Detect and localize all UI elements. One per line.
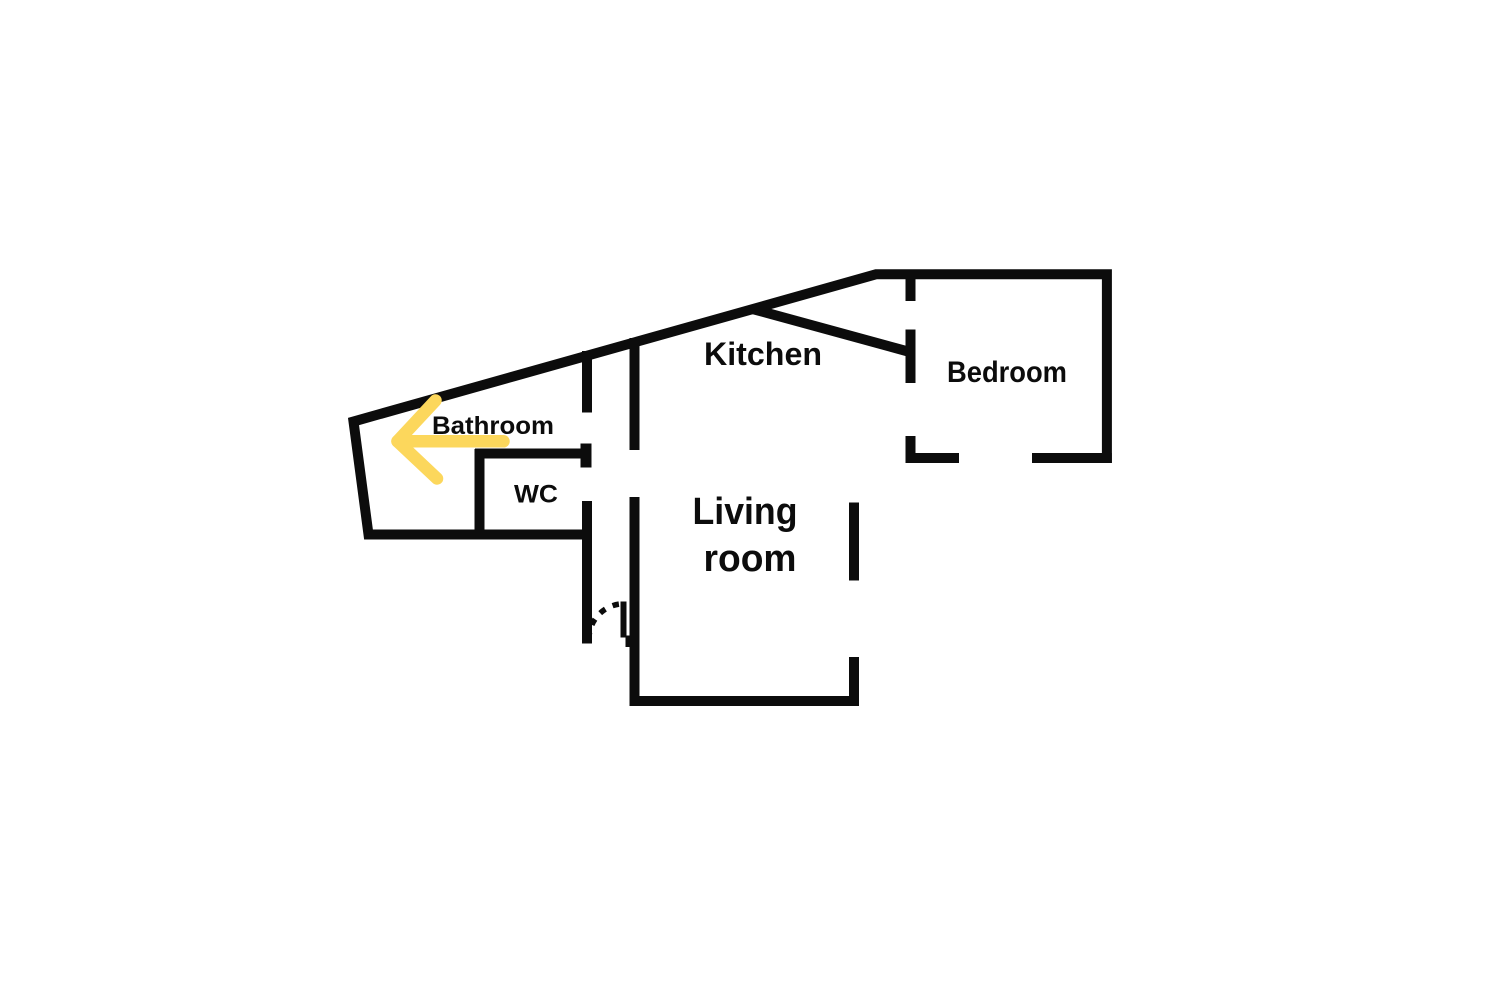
svg-text:Kitchen: Kitchen [704,336,822,372]
svg-text:Living: Living [693,491,798,533]
svg-text:WC: WC [514,481,558,509]
svg-text:room: room [704,538,797,580]
svg-text:Bedroom: Bedroom [947,356,1067,389]
